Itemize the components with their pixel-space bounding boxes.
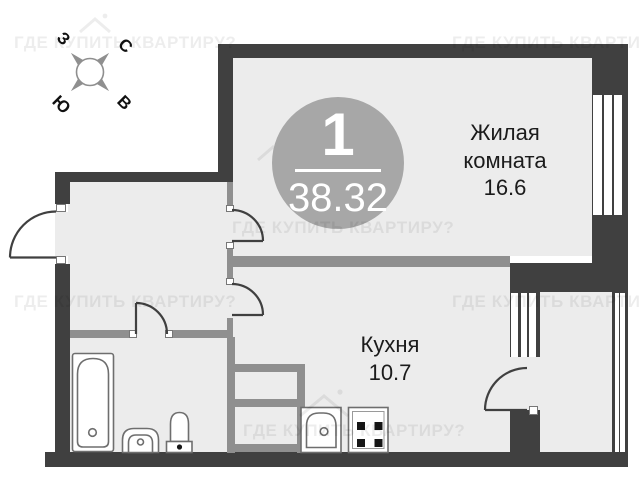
entrance-door-arc	[10, 212, 56, 258]
loggia-door-arc	[485, 368, 527, 410]
apartment-number: 1	[321, 106, 354, 164]
stove-burner	[375, 439, 383, 447]
kitchen-label: Кухня 10.7	[330, 331, 450, 386]
watermark-house-icon	[80, 14, 110, 32]
apartment-badge: 1 38.32	[272, 97, 404, 229]
stove-burner	[357, 422, 365, 430]
living-room-area: 16.6	[440, 174, 570, 202]
living-door-arc	[232, 210, 263, 241]
kitchen-area: 10.7	[330, 359, 450, 387]
living-room-name-line1: Жилая	[440, 119, 570, 147]
floor-plan-canvas: 1 38.32 Жилая комната 16.6 Кухня 10.7 З …	[0, 0, 640, 480]
living-room-label: Жилая комната 16.6	[440, 119, 570, 202]
badge-divider	[295, 169, 381, 172]
kitchen-name: Кухня	[330, 331, 450, 359]
bathtub-drain	[89, 429, 97, 437]
bathroom-door-arc	[136, 303, 167, 334]
stove-burner	[375, 422, 383, 430]
kitchen-sink-faucet	[320, 428, 328, 436]
kitchen-door-arc	[232, 284, 263, 315]
toilet-flush-dot	[177, 444, 182, 449]
living-room-name-line2: комната	[440, 147, 570, 175]
total-area-value: 38.32	[288, 178, 388, 218]
compass-circle	[77, 59, 104, 86]
plan-overlay	[0, 0, 640, 480]
toilet-bowl	[171, 413, 189, 442]
bathroom-sink-faucet	[138, 439, 144, 445]
stove-burner	[357, 439, 365, 447]
